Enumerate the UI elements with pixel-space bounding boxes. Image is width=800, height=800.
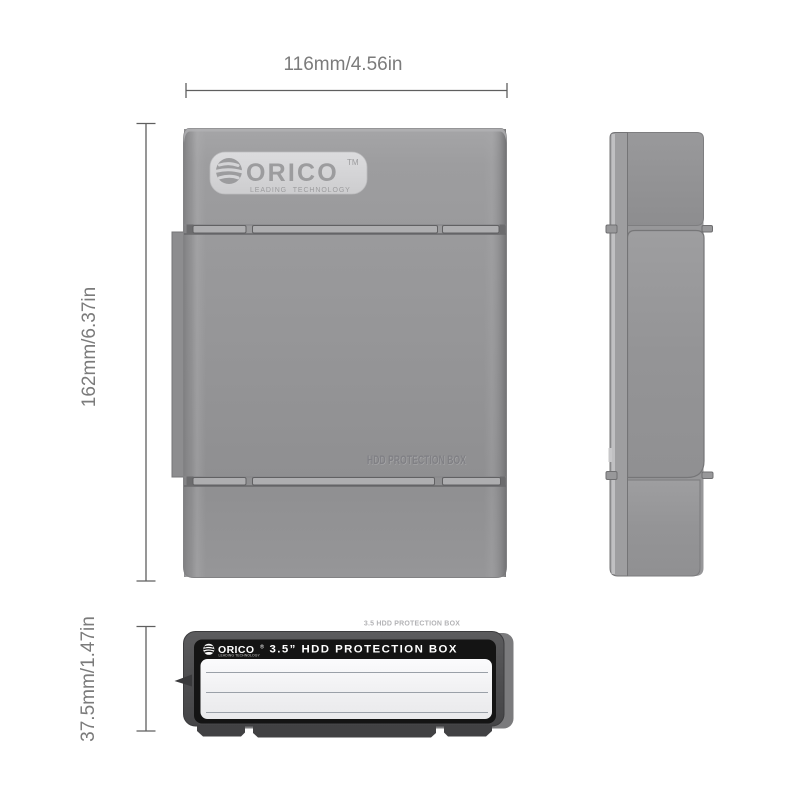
svg-text:LEADING TECHNOLOGY: LEADING TECHNOLOGY <box>219 653 261 657</box>
svg-text:HDD PROTECTION BOX: HDD PROTECTION BOX <box>367 455 466 467</box>
svg-text:®: ® <box>260 644 264 651</box>
svg-text:3.5 HDD PROTECTION BOX: 3.5 HDD PROTECTION BOX <box>364 621 460 628</box>
svg-text:37.5mm/1.47in: 37.5mm/1.47in <box>78 616 99 742</box>
svg-text:116mm/4.56in: 116mm/4.56in <box>284 54 403 75</box>
svg-text:TM: TM <box>347 158 359 167</box>
svg-text:LEADING TECHNOLOGY: LEADING TECHNOLOGY <box>250 187 351 194</box>
svg-text:3.5” HDD PROTECTION BOX: 3.5” HDD PROTECTION BOX <box>270 644 458 656</box>
svg-text:162mm/6.37in: 162mm/6.37in <box>79 287 100 407</box>
svg-text:ORICO: ORICO <box>246 159 339 187</box>
